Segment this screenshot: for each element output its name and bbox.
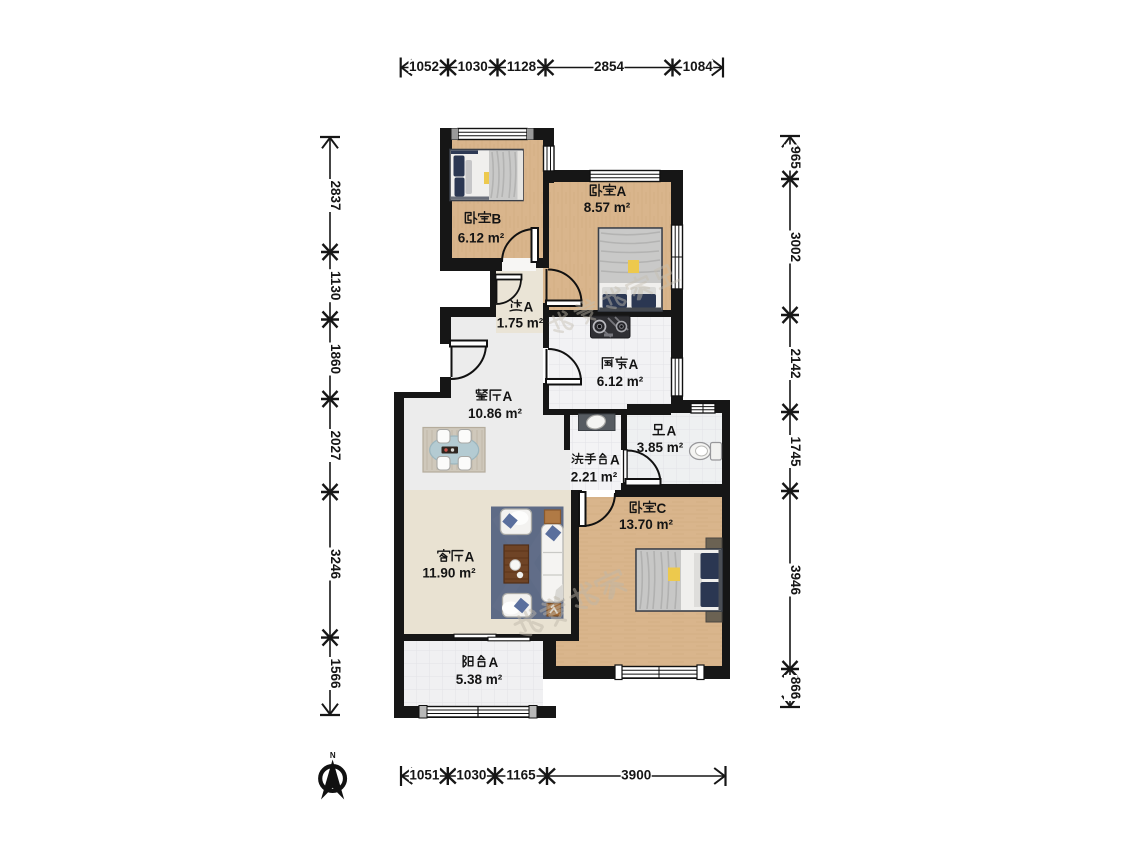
svg-text:N: N [330,751,336,760]
svg-text:A: A [524,300,534,315]
svg-text:8.57 m²: 8.57 m² [584,200,631,215]
svg-text:11.90 m²: 11.90 m² [422,566,476,581]
svg-text:866: 866 [788,677,803,700]
svg-text:1130: 1130 [328,271,343,300]
svg-text:1566: 1566 [328,658,343,689]
svg-text:3900: 3900 [621,768,651,783]
svg-text:1165: 1165 [506,768,536,783]
svg-text:10.86 m²: 10.86 m² [468,406,523,421]
svg-text:3.85 m²: 3.85 m² [637,440,684,455]
svg-text:6.12 m²: 6.12 m² [458,231,505,246]
svg-text:2142: 2142 [788,348,803,378]
svg-text:2.21 m²: 2.21 m² [571,470,618,485]
svg-text:C: C [657,501,667,516]
svg-text:1.75 m²: 1.75 m² [497,316,544,331]
svg-text:2027: 2027 [328,430,343,460]
svg-text:A: A [503,389,513,404]
svg-text:A: A [610,453,620,468]
svg-text:1030: 1030 [458,59,488,74]
svg-text:1051: 1051 [409,768,440,783]
svg-text:5.38 m²: 5.38 m² [456,672,503,687]
svg-text:1128: 1128 [507,59,537,74]
svg-text:13.70 m²: 13.70 m² [619,517,674,532]
svg-text:3002: 3002 [788,232,803,262]
svg-text:2854: 2854 [594,59,625,74]
svg-text:A: A [465,550,475,565]
svg-text:1052: 1052 [409,59,439,74]
svg-text:A: A [667,424,677,439]
svg-text:1860: 1860 [328,344,343,374]
svg-text:1745: 1745 [788,436,803,467]
svg-text:3946: 3946 [788,565,803,596]
svg-text:A: A [489,655,499,670]
svg-text:965: 965 [788,146,803,169]
svg-text:6.12 m²: 6.12 m² [597,374,644,389]
svg-text:1030: 1030 [456,768,486,783]
svg-text:1084: 1084 [683,59,714,74]
svg-text:2837: 2837 [328,180,343,210]
svg-text:A: A [617,184,627,199]
svg-text:A: A [629,357,639,372]
svg-text:3246: 3246 [328,549,343,580]
svg-text:B: B [492,212,502,227]
